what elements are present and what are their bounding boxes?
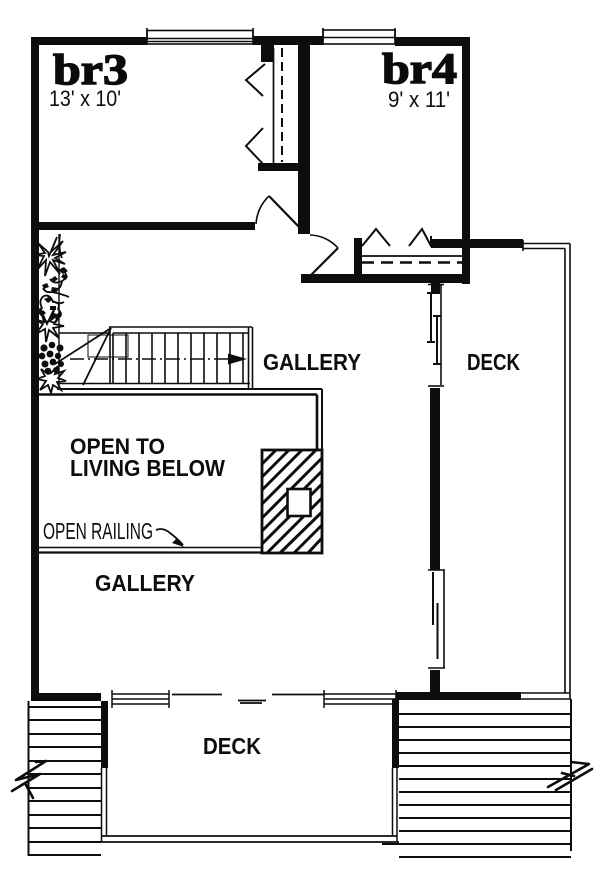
svg-text:OPEN RAILING: OPEN RAILING: [43, 518, 153, 544]
svg-text:DECK: DECK: [203, 733, 261, 759]
svg-text:13' x 10': 13' x 10': [49, 86, 121, 111]
svg-text:GALLERY: GALLERY: [95, 570, 195, 596]
svg-text:br4: br4: [382, 46, 457, 93]
svg-text:GALLERY: GALLERY: [263, 349, 361, 375]
svg-text:LIVING BELOW: LIVING BELOW: [70, 455, 225, 481]
svg-text:DECK: DECK: [467, 349, 520, 375]
svg-text:9' x 11': 9' x 11': [388, 87, 450, 112]
